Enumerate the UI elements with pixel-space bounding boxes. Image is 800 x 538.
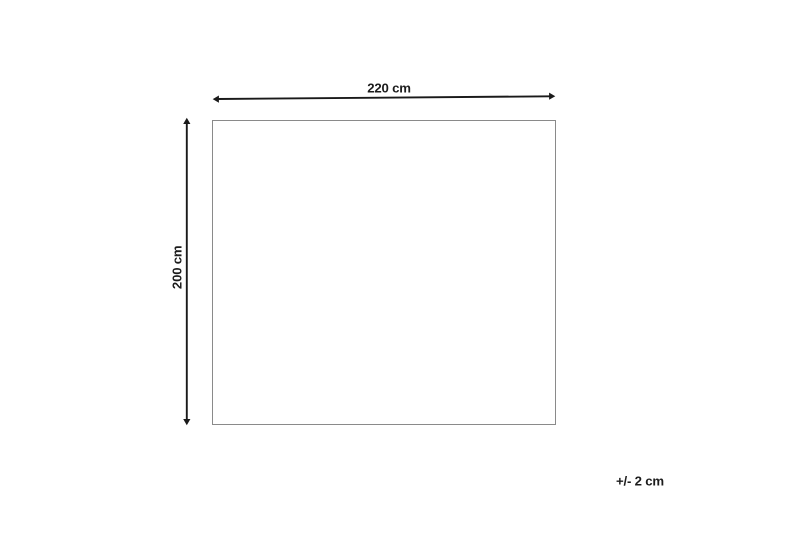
svg-text:200 cm: 200 cm	[170, 246, 185, 290]
svg-text:220 cm: 220 cm	[367, 80, 411, 95]
svg-text:+/- 2 cm: +/- 2 cm	[616, 473, 664, 488]
